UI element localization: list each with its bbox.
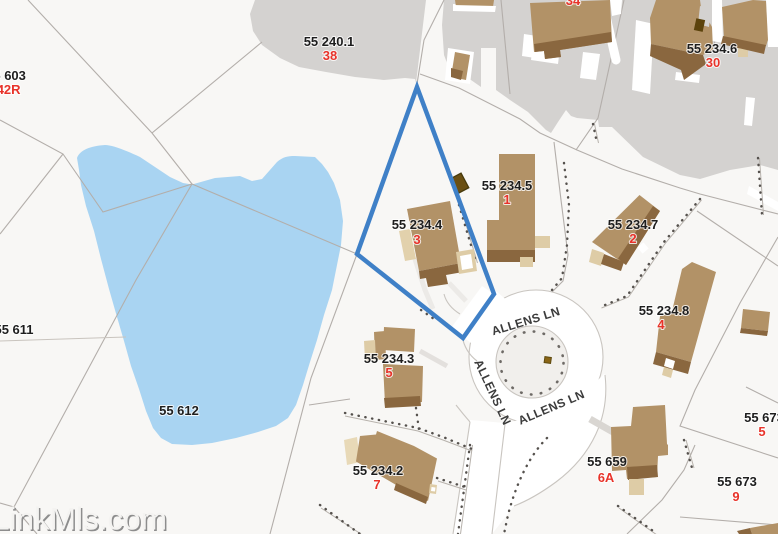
svg-text:55 611: 55 611 bbox=[0, 322, 34, 337]
svg-text:LinkMls.com: LinkMls.com bbox=[0, 501, 167, 534]
svg-text:34: 34 bbox=[566, 0, 581, 8]
svg-text:3: 3 bbox=[413, 232, 420, 247]
svg-text:2: 2 bbox=[629, 231, 636, 246]
svg-text:55 612: 55 612 bbox=[159, 403, 199, 418]
svg-text:6A: 6A bbox=[598, 470, 615, 485]
svg-text:55 234.8: 55 234.8 bbox=[639, 303, 690, 318]
svg-text:55 673: 55 673 bbox=[744, 410, 778, 425]
svg-text:55 234.4: 55 234.4 bbox=[392, 217, 443, 232]
svg-text:5: 5 bbox=[385, 365, 392, 380]
svg-text:55 673: 55 673 bbox=[717, 474, 757, 489]
svg-text:55 234.6: 55 234.6 bbox=[687, 41, 738, 56]
svg-text:55 603: 55 603 bbox=[0, 68, 26, 83]
svg-text:242R: 242R bbox=[0, 82, 21, 97]
svg-text:9: 9 bbox=[732, 489, 739, 504]
svg-text:55 234.5: 55 234.5 bbox=[482, 178, 533, 193]
svg-text:7: 7 bbox=[373, 477, 380, 492]
svg-text:55 234.7: 55 234.7 bbox=[608, 217, 659, 232]
svg-text:55 240.1: 55 240.1 bbox=[304, 34, 355, 49]
svg-text:55 234.2: 55 234.2 bbox=[353, 463, 404, 478]
svg-text:1: 1 bbox=[503, 192, 510, 207]
svg-text:55 234.3: 55 234.3 bbox=[364, 351, 415, 366]
svg-text:38: 38 bbox=[323, 48, 337, 63]
svg-text:5: 5 bbox=[758, 424, 765, 439]
svg-text:30: 30 bbox=[706, 55, 720, 70]
svg-text:4: 4 bbox=[657, 317, 665, 332]
svg-text:55 659: 55 659 bbox=[587, 454, 627, 469]
